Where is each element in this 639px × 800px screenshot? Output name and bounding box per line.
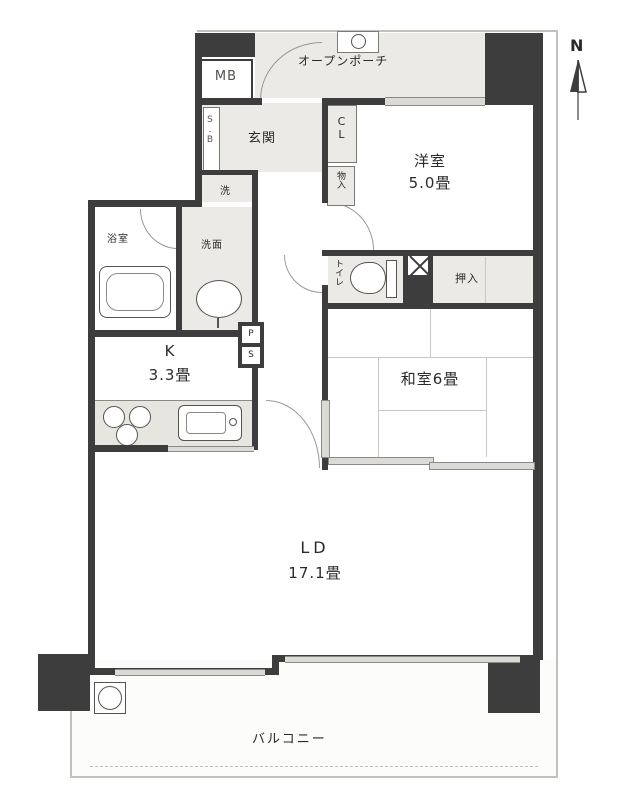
- floor-plan: MB S.B CL 物入 P S オープンポーチ 玄関 洗 浴室 洗面 トイレ …: [0, 0, 639, 800]
- north-label: N: [570, 36, 584, 55]
- wash-basin-drain-icon: [217, 318, 219, 328]
- toilet-tank-icon: [386, 260, 397, 298]
- porch-label: オープンポーチ: [298, 52, 388, 69]
- washitsu-fusuma-right: [429, 462, 535, 470]
- outline-right: [556, 30, 558, 777]
- pillar-bottom-left: [38, 654, 90, 711]
- balcony-label: バルコニー: [252, 728, 327, 747]
- pillar-bottom-right: [488, 656, 540, 713]
- bath-label: 浴室: [107, 230, 129, 245]
- wall-entrance-top: [195, 98, 262, 105]
- pillar-top-left: [195, 33, 255, 57]
- tatami-line: [378, 410, 486, 411]
- living-size: 17.1畳: [255, 562, 375, 583]
- washitsu-fusuma-left: [328, 457, 434, 465]
- washroom-label: 洗面: [201, 236, 223, 251]
- kitchen-faucet-icon: [229, 418, 237, 426]
- wall-laundry-top: [202, 170, 258, 175]
- kitchen-sink-basin-icon: [186, 412, 226, 434]
- stove-burner-icon: [116, 424, 138, 446]
- kitchen-counter-pass: [168, 446, 254, 452]
- ld-window-left: [115, 669, 265, 676]
- western-room-name: 洋室: [370, 150, 490, 171]
- wash-basin-icon: [196, 280, 242, 318]
- cl-closet-label: CL: [335, 115, 348, 141]
- wall-right: [533, 98, 543, 660]
- tatami-line: [328, 357, 533, 358]
- kitchen-size: 3.3畳: [115, 364, 225, 385]
- western-room-window: [385, 97, 485, 106]
- washitsu-side-fusuma: [321, 400, 330, 458]
- wall-corridor-left: [252, 170, 258, 450]
- north-arrow-icon: [562, 56, 594, 122]
- porch-meter-dial-icon: [351, 34, 366, 49]
- ld-window-right: [285, 656, 520, 663]
- western-room-size: 5.0畳: [370, 172, 490, 193]
- oshiire-closet: [433, 255, 533, 303]
- wall-step: [88, 200, 202, 207]
- wall-ld-bottom-step: [272, 655, 279, 675]
- bathtub-inner-icon: [106, 273, 164, 311]
- shaft-fill: [406, 277, 432, 305]
- entrance-label: 玄関: [248, 127, 276, 146]
- wall-kitchen-bottom: [88, 445, 168, 452]
- living-name: LD: [255, 538, 375, 557]
- wall-corridor-right-a: [322, 105, 328, 203]
- laundry-label: 洗: [220, 182, 231, 197]
- balcony-rail-bottom: [70, 776, 558, 778]
- balcony-drain-line: [90, 766, 538, 767]
- wall-left: [88, 200, 95, 675]
- wall-below-washroom: [88, 330, 258, 337]
- closet-divider-line: [485, 257, 486, 303]
- monoire-closet-label: 物入: [334, 171, 347, 189]
- kitchen-name: K: [115, 342, 225, 360]
- meter-box-label: MB: [199, 69, 253, 84]
- shaft-x-icon: [406, 253, 430, 277]
- balcony-area: [72, 660, 556, 776]
- wall-bath-washroom: [176, 207, 182, 335]
- toilet-bowl-icon: [350, 262, 386, 294]
- pipe-space-label-top: P: [242, 326, 260, 343]
- slop-sink-bowl-icon: [98, 686, 122, 710]
- wall-left-upper: [195, 33, 202, 205]
- japanese-room-label: 和室6畳: [370, 368, 490, 389]
- pillar-top-right: [485, 33, 543, 100]
- pipe-space-label-bottom: S: [242, 347, 260, 364]
- oshiire-label: 押入: [455, 270, 479, 286]
- toilet-label: トイレ: [332, 259, 345, 286]
- shoe-box-label: S.B: [205, 115, 215, 145]
- tatami-line: [430, 309, 431, 357]
